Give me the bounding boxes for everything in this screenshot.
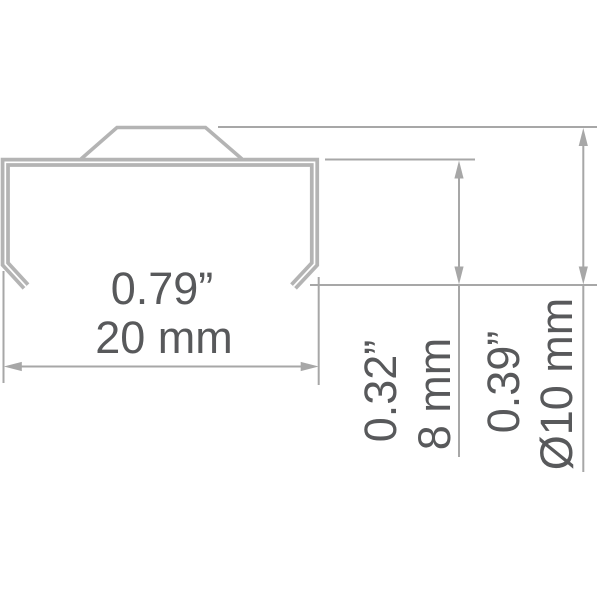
outer-height-arrow-bottom (579, 267, 588, 285)
inner-height-dimension: 0.32” 8 mm (355, 161, 464, 458)
width-label-inches: 0.79” (111, 263, 214, 314)
technical-drawing-canvas: 0.79” 20 mm 0.32” 8 mm 0.39” Ø10 mm (0, 0, 600, 600)
outer-height-label-inches: 0.39” (478, 331, 529, 434)
top-mounting-tab-outline (81, 128, 242, 160)
outer-height-arrow-top (579, 128, 588, 146)
width-label-mm: 20 mm (95, 312, 233, 363)
inner-height-label-mm: 8 mm (409, 338, 460, 451)
inner-height-arrow-top (454, 161, 463, 179)
width-dimension: 0.79” 20 mm (4, 263, 319, 371)
width-arrow-right (301, 362, 319, 371)
inner-height-label-inches: 0.32” (355, 340, 406, 443)
width-arrow-left (4, 362, 22, 371)
outer-height-label-mm: Ø10 mm (531, 298, 582, 471)
outer-height-dimension: 0.39” Ø10 mm (478, 128, 588, 472)
inner-height-arrow-bottom (454, 267, 463, 285)
profile-dimension-drawing: 0.79” 20 mm 0.32” 8 mm 0.39” Ø10 mm (0, 0, 600, 600)
